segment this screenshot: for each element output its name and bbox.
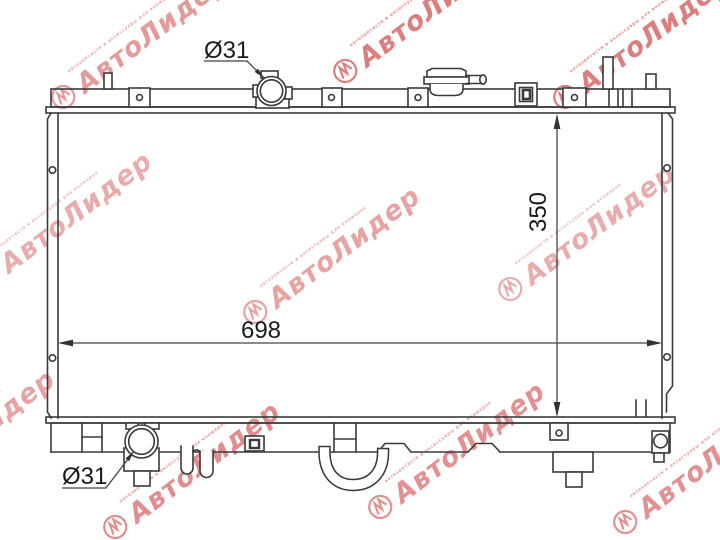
radiator-cap [424,69,486,96]
callout-inlet-diameter: Ø31 [204,37,264,78]
top-square-fitting [515,83,537,106]
right-side-plate [636,113,673,418]
outlet-diameter-label: Ø31 [62,463,107,490]
height-dimension-label: 350 [525,192,552,232]
bottom-square-fitting [245,436,264,451]
width-dimension-label: 698 [241,317,281,344]
dimension-width: 698 [58,317,662,346]
left-side-plate [48,113,59,418]
callout-outlet-diameter: Ø31 [62,451,134,490]
bottom-tank-bumps [378,444,500,453]
arrow-left [58,340,73,347]
top-pin-small [646,74,656,89]
arrow-up [554,114,561,129]
arrow-down [554,402,561,417]
outlet-port [124,423,159,486]
inlet-diameter-label: Ø31 [204,37,249,64]
dimension-height: 350 [525,114,560,417]
drain-tubes [181,446,213,478]
bottom-tank-dividers [82,423,356,452]
bottom-hose [325,452,384,485]
arrow-right [647,340,662,347]
radiator-drawing-canvas: автозапчасти и аксессуары для иномарокАв… [0,0,720,540]
filler-neck [253,71,292,108]
radiator-technical-drawing: 698 350 Ø31 Ø31 [0,0,720,540]
top-tank-dividers [609,89,632,107]
bottom-brackets [550,423,669,487]
top-pin-left [104,73,112,89]
top-pin-tall [603,57,613,89]
